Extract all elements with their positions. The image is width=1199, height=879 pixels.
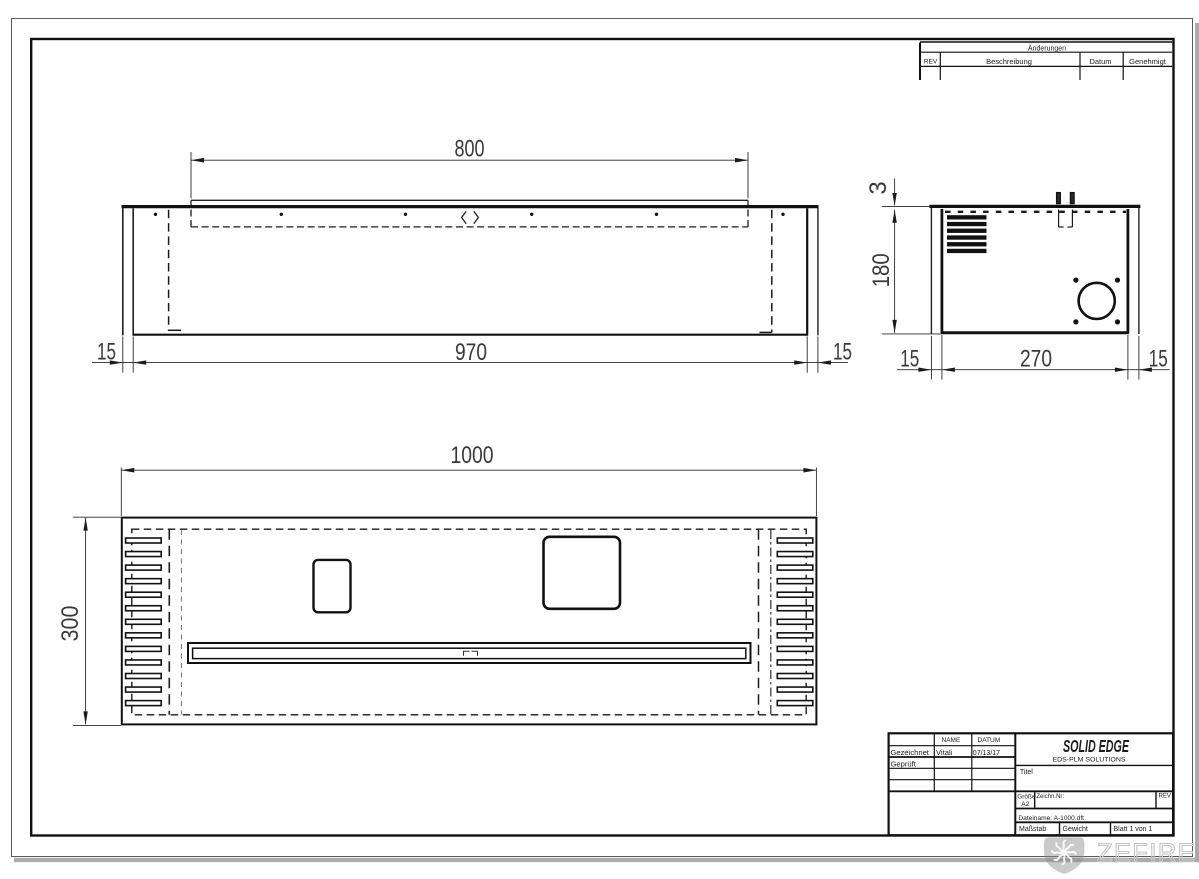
svg-text:Beschreibung: Beschreibung	[986, 57, 1032, 66]
svg-text:1000: 1000	[451, 442, 494, 469]
svg-text:15: 15	[900, 346, 919, 373]
svg-text:Genehmigt: Genehmigt	[1129, 57, 1167, 66]
svg-text:Vitali: Vitali	[936, 748, 953, 757]
svg-text:300: 300	[57, 606, 84, 642]
svg-text:Größe: Größe	[1017, 793, 1036, 800]
svg-text:Änderungen: Änderungen	[1028, 44, 1066, 52]
svg-text:800: 800	[455, 136, 485, 163]
svg-text:15: 15	[1149, 346, 1168, 373]
svg-text:15: 15	[833, 339, 852, 366]
svg-text:ZEFIRE: ZEFIRE	[1097, 840, 1196, 868]
svg-text:A2: A2	[1021, 801, 1029, 808]
svg-text:07/13/17: 07/13/17	[973, 750, 1000, 757]
svg-text:3: 3	[865, 181, 892, 194]
svg-text:SOLID EDGE: SOLID EDGE	[1063, 736, 1130, 756]
svg-text:970: 970	[455, 339, 487, 366]
svg-text:Dateiname: A-1000.dft: Dateiname: A-1000.dft	[1018, 815, 1084, 822]
svg-text:Titel: Titel	[1020, 769, 1033, 776]
svg-text:Maßstab: Maßstab	[1019, 826, 1046, 833]
svg-text:REV: REV	[924, 59, 938, 66]
svg-text:REV: REV	[1159, 794, 1171, 800]
svg-text:Blatt 1 von 1: Blatt 1 von 1	[1114, 826, 1153, 833]
svg-text:270: 270	[1020, 346, 1052, 373]
svg-text:180: 180	[868, 253, 895, 287]
svg-text:Geprüft: Geprüft	[891, 760, 917, 769]
svg-text:EDS-PLM SOLUTIONS: EDS-PLM SOLUTIONS	[1053, 757, 1126, 764]
svg-text:Gezeichnet: Gezeichnet	[891, 748, 930, 757]
svg-text:15: 15	[97, 339, 116, 366]
svg-text:Gewicht: Gewicht	[1063, 826, 1088, 833]
svg-text:NAME: NAME	[942, 737, 961, 744]
svg-text:Datum: Datum	[1089, 57, 1111, 66]
svg-text:Zeichn.Nr:: Zeichn.Nr:	[1036, 794, 1064, 800]
svg-text:DATUM: DATUM	[978, 737, 1001, 744]
